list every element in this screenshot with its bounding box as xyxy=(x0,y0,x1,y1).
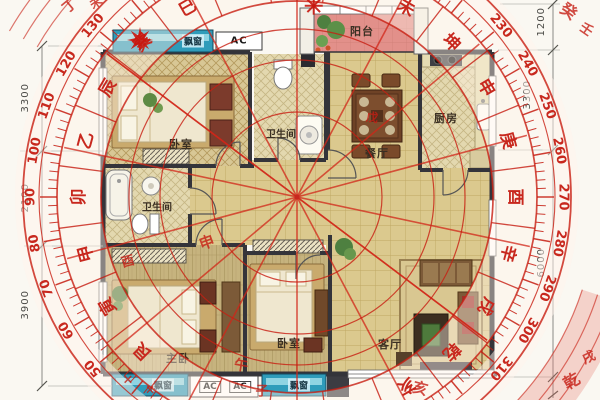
sink-icon xyxy=(142,177,160,195)
room-label-kitchen: 厨房 xyxy=(434,110,458,126)
dimension-left-2: 2100 xyxy=(20,183,31,212)
bed-icon xyxy=(112,280,216,354)
dimension-right-3: 6000 xyxy=(536,248,547,277)
room-label-living: 客厅 xyxy=(378,336,402,352)
room-label-bedroom-top: 卧室 xyxy=(169,136,193,152)
washer-icon xyxy=(296,116,322,154)
toilet-icon xyxy=(132,214,159,234)
bay-window-label: 飘窗 xyxy=(182,35,204,48)
wardrobe-icon xyxy=(315,290,328,336)
ac-label: AC xyxy=(229,381,251,393)
toilet-icon xyxy=(274,60,292,89)
dimension-left-3: 3900 xyxy=(20,290,31,319)
room-label-bedroom-bottom: 卧室 xyxy=(277,335,301,351)
dimension-left-1: 3300 xyxy=(20,83,31,112)
room-label-bath-top: 卫生间 xyxy=(266,126,296,141)
bay-window-label: 飘窗 xyxy=(152,379,174,392)
ac-label: AC xyxy=(230,36,247,47)
room-label-master: 主卧 xyxy=(166,350,190,366)
ac-label: AC xyxy=(199,381,221,393)
closet-icon xyxy=(112,249,186,263)
room-label-balcony: 阳台 xyxy=(350,23,374,39)
room-label-bath-mid: 卫生间 xyxy=(142,199,172,214)
room-label-dining: 餐厅 xyxy=(365,145,389,161)
bathtub-icon xyxy=(106,170,132,220)
dimension-right-1: 1200 xyxy=(536,7,547,36)
column xyxy=(327,374,349,397)
bay-window-label: 飘窗 xyxy=(288,379,310,392)
floorplan-screenshot: 卧室 卫生间 阳台 餐厅 厨房 卫生间 主卧 卧室 客厅 飘窗 AC 飘窗 AC… xyxy=(0,0,600,400)
dimension-right-2: 3300 xyxy=(522,80,533,109)
wardrobe-icon xyxy=(222,282,240,352)
